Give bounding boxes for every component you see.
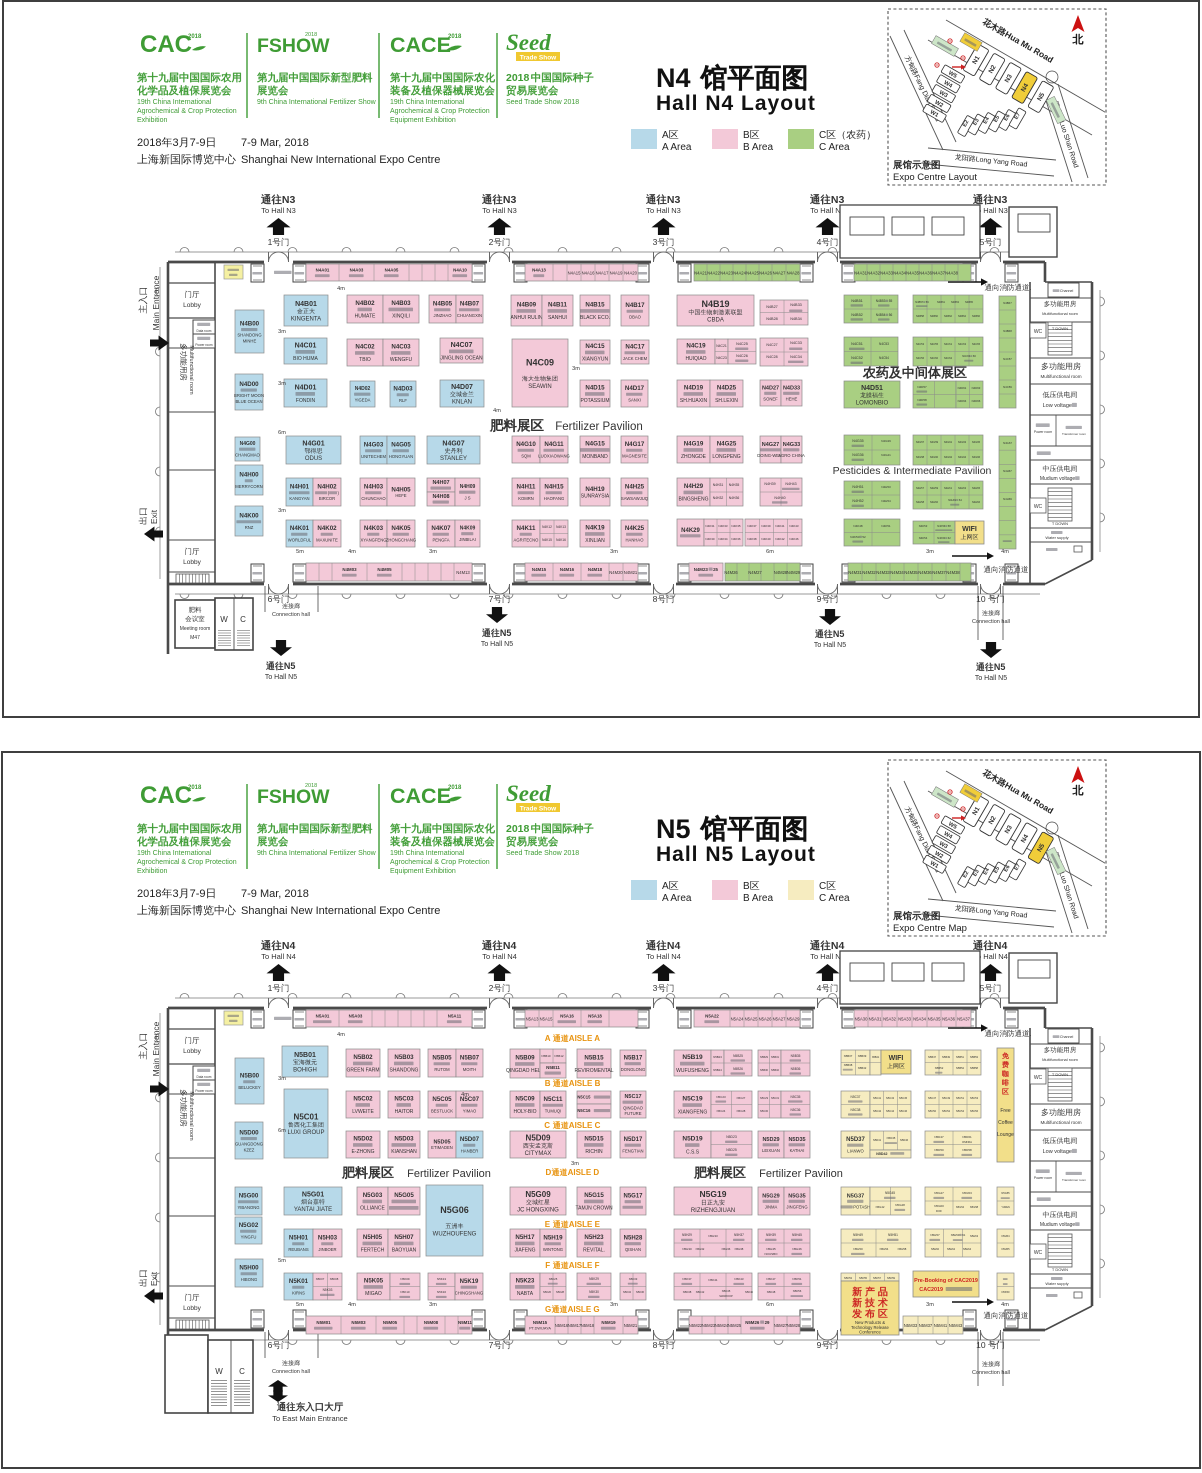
svg-text:2018: 2018 <box>448 34 462 40</box>
svg-text:N5H63: N5H63 <box>970 1234 979 1238</box>
svg-text:N4A05: N4A05 <box>385 267 399 272</box>
svg-text:N4G65: N4G65 <box>972 440 981 444</box>
svg-text:Power room: Power room <box>1034 1176 1052 1180</box>
svg-text:N4H51: N4H51 <box>852 485 863 489</box>
svg-text:N5G09: N5G09 <box>525 1190 551 1199</box>
svg-text:TBIO: TBIO <box>359 357 371 363</box>
svg-text:N5A33: N5A33 <box>898 1017 911 1022</box>
svg-text:SH.HUAXIN: SH.HUAXIN <box>680 398 708 404</box>
svg-text:4m: 4m <box>337 286 345 292</box>
svg-text:RIZHENGJIUAN: RIZHENGJIUAN <box>691 1208 735 1214</box>
svg-text:6m: 6m <box>278 430 286 436</box>
svg-text:Multifunctional room: Multifunctional room <box>1040 374 1081 379</box>
svg-text:SHANDONG: SHANDONG <box>390 1068 419 1074</box>
svg-text:N5C47: N5C47 <box>928 1096 937 1100</box>
svg-text:N5B15: N5B15 <box>584 1054 604 1061</box>
svg-text:DONGLONG: DONGLONG <box>621 1067 645 1072</box>
svg-text:N5H37: N5H37 <box>734 1233 744 1237</box>
svg-text:Equipment Exhibition: Equipment Exhibition <box>390 117 456 124</box>
svg-text:N5A36: N5A36 <box>942 1017 955 1022</box>
svg-text:QISHAN: QISHAN <box>625 1247 641 1252</box>
svg-text:N5G15: N5G15 <box>584 1192 604 1199</box>
svg-text:N4A28: N4A28 <box>787 271 800 276</box>
svg-text:XIANGYUN: XIANGYUN <box>582 357 609 363</box>
svg-text:N4H35: N4H35 <box>729 483 740 487</box>
svg-text:N4: N4 <box>503 940 517 952</box>
svg-text:N4B17: N4B17 <box>625 302 645 309</box>
svg-text:C: C <box>239 1367 245 1376</box>
svg-text:N5M21: N5M21 <box>624 1323 638 1328</box>
svg-text:N5G37: N5G37 <box>847 1193 864 1199</box>
svg-text:Multifunctional room: Multifunctional room <box>188 1091 194 1141</box>
svg-text:N4C64: N4C64 <box>962 354 971 358</box>
svg-text:N5A18: N5A18 <box>588 1013 602 1018</box>
svg-text:N4K54: N4K54 <box>919 536 928 540</box>
svg-text:HONGYUAN: HONGYUAN <box>389 454 413 459</box>
svg-text:JINBOER: JINBOER <box>318 1247 336 1252</box>
svg-text:SANXI: SANXI <box>628 397 641 402</box>
svg-text:N5G05: N5G05 <box>394 1192 414 1199</box>
svg-text:N5H45: N5H45 <box>766 1247 776 1251</box>
svg-text:3m: 3m <box>610 549 618 555</box>
svg-text:N4H29: N4H29 <box>684 483 704 490</box>
svg-text:N5C43: N5C43 <box>886 1096 895 1100</box>
svg-text:N5G06: N5G06 <box>440 1205 469 1215</box>
svg-text:C: C <box>819 130 826 141</box>
svg-text:N5M33: N5M33 <box>904 1323 918 1328</box>
svg-text:N4C53: N4C53 <box>916 342 925 346</box>
svg-text:To Hall N5: To Hall N5 <box>814 642 846 649</box>
svg-text:2018: 2018 <box>137 137 161 149</box>
svg-text:N5K55: N5K55 <box>859 1276 867 1280</box>
svg-text:7-9: 7-9 <box>190 888 206 900</box>
svg-text:N5B51: N5B51 <box>956 1055 964 1059</box>
svg-text:WENGFU: WENGFU <box>390 357 413 363</box>
svg-text:STANLEY: STANLEY <box>440 456 467 462</box>
svg-text:N4C56: N4C56 <box>916 356 925 360</box>
svg-text:N5K42: N5K42 <box>696 1290 705 1294</box>
svg-text:OLLIANCE: OLLIANCE <box>360 1206 385 1212</box>
svg-text:B Area: B Area <box>743 893 773 904</box>
svg-text:N4M36: N4M36 <box>918 570 932 575</box>
svg-text:N4M33: N4M33 <box>876 570 890 575</box>
svg-text:N4D64: N4D64 <box>958 399 967 403</box>
svg-text:N5C37: N5C37 <box>851 1095 861 1099</box>
svg-text:N5A22: N5A22 <box>705 1013 719 1018</box>
svg-text:N5C31: N5C31 <box>771 1096 780 1100</box>
svg-text:N4H69: N4H69 <box>1003 497 1012 501</box>
svg-text:Fertilizer Pavilion: Fertilizer Pavilion <box>759 1168 843 1180</box>
svg-text:N4G62: N4G62 <box>944 455 953 459</box>
svg-text:N5D25: N5D25 <box>726 1148 737 1152</box>
svg-text:N4D17: N4D17 <box>625 385 645 392</box>
svg-text:Power room: Power room <box>195 343 213 347</box>
svg-text:N5H17: N5H17 <box>515 1234 535 1241</box>
svg-text:CAC2019: CAC2019 <box>919 1287 943 1293</box>
svg-text:ETIMADEN: ETIMADEN <box>431 1145 453 1150</box>
svg-text:Shanghai New International Exp: Shanghai New International Expo Centre <box>241 905 440 917</box>
svg-text:To Hall N4: To Hall N4 <box>646 952 681 961</box>
svg-text:N4K15: N4K15 <box>542 538 552 542</box>
svg-text:XINQILI: XINQILI <box>392 314 410 320</box>
svg-text:N4K25: N4K25 <box>625 525 645 532</box>
svg-text:KOMRN: KOMRN <box>518 496 534 501</box>
svg-text:N5C56: N5C56 <box>970 1109 979 1113</box>
svg-text:N5B12: N5B12 <box>554 1054 564 1058</box>
svg-text:N5K29: N5K29 <box>589 1277 599 1281</box>
svg-text:.: . <box>1030 1029 1032 1038</box>
svg-text:N5K05: N5K05 <box>364 1277 384 1284</box>
svg-text:G: G <box>545 1305 551 1314</box>
svg-text:N4C63: N4C63 <box>958 342 967 346</box>
svg-text:Exit: Exit <box>149 509 159 524</box>
svg-text:T DOWN: T DOWN <box>1052 326 1068 331</box>
svg-text:N4B05: N4B05 <box>433 301 453 308</box>
svg-text:C: C <box>544 1121 550 1130</box>
svg-text:N4B64: N4B64 <box>958 314 966 318</box>
svg-text:N5G01: N5G01 <box>302 1191 324 1198</box>
svg-text:Seed: Seed <box>506 30 551 55</box>
svg-text:N5H58: N5H58 <box>898 1247 907 1251</box>
svg-text:N5D02: N5D02 <box>353 1135 373 1142</box>
svg-text:KIRNS: KIRNS <box>292 1290 305 1295</box>
svg-text:3m: 3m <box>278 329 286 335</box>
svg-text:WC: WC <box>1034 504 1043 510</box>
svg-text:N5D37: N5D37 <box>846 1137 865 1143</box>
svg-text:N5H28: N5H28 <box>624 1236 643 1242</box>
svg-text:BRIGHT MOON: BRIGHT MOON <box>234 393 264 398</box>
svg-text:N5A24: N5A24 <box>731 1017 744 1022</box>
svg-text:N4A15: N4A15 <box>568 271 581 276</box>
svg-text:N5K10: N5K10 <box>400 1290 410 1294</box>
svg-text:N5B38: N5B38 <box>844 1063 853 1067</box>
svg-text:N5H23: N5H23 <box>584 1234 604 1241</box>
svg-text:4m: 4m <box>461 1092 469 1098</box>
svg-text:Pre-Booking of CAC2019: Pre-Booking of CAC2019 <box>914 1278 978 1284</box>
svg-text:N5C54: N5C54 <box>956 1109 965 1113</box>
svg-text:2018: 2018 <box>506 72 530 84</box>
svg-text:N4D07: N4D07 <box>451 384 473 391</box>
svg-text:N4G19: N4G19 <box>684 440 704 447</box>
svg-text:RNZ: RNZ <box>245 525 254 530</box>
svg-text:HUIQIAO: HUIQIAO <box>685 356 706 362</box>
svg-text:N4A22: N4A22 <box>707 271 720 276</box>
svg-text:Connection hall: Connection hall <box>972 619 1010 625</box>
svg-text:N5H39: N5H39 <box>766 1233 776 1237</box>
svg-text:HEFE: HEFE <box>395 493 406 498</box>
svg-text:N5K53: N5K53 <box>844 1276 852 1280</box>
svg-text:Multifunctional room: Multifunctional room <box>1042 1057 1078 1062</box>
svg-text:6m: 6m <box>766 549 774 555</box>
svg-text:N4B15: N4B15 <box>585 301 605 308</box>
svg-text:1: 1 <box>268 237 273 247</box>
svg-text:AGRITECNO: AGRITECNO <box>514 537 540 542</box>
svg-text:KZEZ: KZEZ <box>244 1147 255 1152</box>
svg-text:C Area: C Area <box>819 893 850 904</box>
svg-text:ANHUI RULIN: ANHUI RULIN <box>511 315 543 321</box>
svg-text:Connection hall: Connection hall <box>972 1370 1010 1376</box>
svg-text:Trade Show: Trade Show <box>520 806 557 813</box>
svg-text:N4K09: N4K09 <box>460 526 476 532</box>
svg-text:PT.DWIJAYA: PT.DWIJAYA <box>529 1327 551 1331</box>
svg-text:Main Entrance: Main Entrance <box>151 1021 161 1076</box>
svg-text:8: 8 <box>653 594 658 604</box>
svg-text:N4G27: N4G27 <box>762 442 779 448</box>
svg-text:N4H52: N4H52 <box>852 499 863 503</box>
svg-text:N4K12: N4K12 <box>542 525 552 529</box>
svg-text:N4K50: N4K50 <box>850 535 860 539</box>
svg-text:MONBAND: MONBAND <box>582 454 608 460</box>
svg-text:4: 4 <box>817 983 822 993</box>
svg-text:N5A25: N5A25 <box>745 1017 758 1022</box>
svg-text:N5A29: N5A29 <box>787 1017 800 1022</box>
svg-text:N4A23: N4A23 <box>720 271 733 276</box>
svg-text:N5D09: N5D09 <box>526 1133 551 1142</box>
svg-text:6: 6 <box>268 594 273 604</box>
svg-text:N4H00: N4H00 <box>239 472 259 479</box>
svg-text:2018: 2018 <box>305 783 317 789</box>
svg-text:2018: 2018 <box>305 32 317 38</box>
svg-text:N5B09: N5B09 <box>515 1054 535 1061</box>
svg-text:N5A11: N5A11 <box>448 1013 462 1018</box>
svg-text:N4M27: N4M27 <box>748 570 762 575</box>
svg-text:N5C19: N5C19 <box>682 1096 703 1103</box>
svg-text:BLUE OCEAN: BLUE OCEAN <box>236 399 263 404</box>
svg-text:N5B42: N5B42 <box>858 1066 867 1070</box>
svg-text:N4C57: N4C57 <box>1003 357 1012 361</box>
svg-text:N5C41: N5C41 <box>873 1096 882 1100</box>
svg-text:19th China International: 19th China International <box>390 850 465 857</box>
svg-text:N4B02: N4B02 <box>355 300 375 307</box>
svg-text:CBDA: CBDA <box>707 318 724 324</box>
svg-text:N5K30: N5K30 <box>589 1290 599 1294</box>
svg-text:To East Main Entrance: To East Main Entrance <box>272 1414 347 1423</box>
svg-text:N4H40: N4H40 <box>774 496 785 500</box>
svg-text:N4H32: N4H32 <box>713 496 724 500</box>
svg-text:N4M21: N4M21 <box>624 570 638 575</box>
svg-text:N5C42: N5C42 <box>873 1109 882 1113</box>
svg-text:N4A03: N4A03 <box>350 267 364 272</box>
svg-text:N4C25: N4C25 <box>736 342 748 346</box>
svg-text:CACE: CACE <box>390 784 451 808</box>
svg-text:N3: N3 <box>282 194 296 206</box>
svg-text:AISLE G: AISLE G <box>568 1305 600 1314</box>
svg-text:Water supply: Water supply <box>1045 535 1068 540</box>
svg-text:N4B00: N4B00 <box>240 321 260 328</box>
svg-text:N4A13: N4A13 <box>532 267 546 272</box>
svg-text:Lobby: Lobby <box>183 1048 201 1055</box>
svg-text:CITYMAX: CITYMAX <box>525 1151 552 1157</box>
svg-text:Lounge: Lounge <box>997 1132 1014 1138</box>
svg-text:N5B41: N5B41 <box>872 1056 880 1059</box>
svg-text:3m: 3m <box>429 1302 437 1308</box>
svg-text:N4B61: N4B61 <box>937 300 945 304</box>
svg-text:N4K07: N4K07 <box>431 525 451 532</box>
svg-text:C: C <box>240 615 246 624</box>
svg-text:N5H05: N5H05 <box>363 1234 383 1241</box>
svg-text:N5D19: N5D19 <box>682 1136 703 1143</box>
svg-text:YIBANONG: YIBANONG <box>237 1205 259 1210</box>
svg-text:PENGFA: PENGFA <box>433 537 450 542</box>
svg-text:ZHONGDE: ZHONGDE <box>681 454 707 460</box>
svg-text:N5C05: N5C05 <box>432 1096 452 1103</box>
svg-text:N4K38: N4K38 <box>747 537 757 541</box>
svg-text:SANHUI: SANHUI <box>548 315 567 321</box>
svg-text:N5D50: N5D50 <box>934 1148 944 1152</box>
svg-text:N5M01: N5M01 <box>316 1320 331 1325</box>
svg-text:3m: 3m <box>572 366 580 372</box>
svg-text:N4M18: N4M18 <box>588 567 603 572</box>
svg-text:Multifunctional room: Multifunctional room <box>1042 311 1078 316</box>
svg-text:LUOXIAOWANG: LUOXIAOWANG <box>538 453 570 458</box>
svg-text:Seed: Seed <box>506 781 551 806</box>
svg-text:Mudium voltage: Mudium voltage <box>1040 1222 1076 1228</box>
svg-text:N5C49: N5C49 <box>942 1096 951 1100</box>
svg-text:N4G15: N4G15 <box>585 440 605 447</box>
svg-text:Power room: Power room <box>195 1089 213 1093</box>
svg-text:N5B49: N5B49 <box>942 1055 950 1059</box>
svg-text:N5A13: N5A13 <box>526 1017 539 1022</box>
svg-text:N5G54: N5G54 <box>956 1205 965 1209</box>
svg-text:Exit: Exit <box>149 1271 159 1286</box>
svg-text:N4G60: N4G60 <box>930 455 939 459</box>
svg-text:BAOYUAN: BAOYUAN <box>392 1248 417 1254</box>
svg-text:HAITOR: HAITOR <box>395 1109 414 1115</box>
svg-text:XYANGFENG: XYANGFENG <box>361 537 387 542</box>
svg-text:Hall N5 Layout: Hall N5 Layout <box>656 843 816 866</box>
svg-text:N5H45: N5H45 <box>792 1233 802 1237</box>
svg-text:FONDIN: FONDIN <box>296 398 316 404</box>
svg-text:N4C07: N4C07 <box>451 342 473 349</box>
svg-text:N4M26: N4M26 <box>724 570 738 575</box>
svg-text:NOUSBO: NOUSBO <box>764 1252 778 1256</box>
svg-text:N4: N4 <box>667 940 681 952</box>
svg-text:N5B37: N5B37 <box>844 1054 853 1058</box>
svg-text:MAGNESITE: MAGNESITE <box>622 453 647 458</box>
svg-text:N5G00: N5G00 <box>239 1193 259 1200</box>
svg-text:ZHONGCHANG: ZHONGCHANG <box>386 537 416 542</box>
svg-text:N5D47: N5D47 <box>934 1135 944 1139</box>
svg-text:N4G10: N4G10 <box>516 441 536 448</box>
svg-text:10: 10 <box>976 1340 986 1350</box>
svg-text:N4A27: N4A27 <box>773 271 786 276</box>
svg-text:N4C15: N4C15 <box>585 343 605 350</box>
svg-text:N5: N5 <box>284 661 296 671</box>
svg-text:N4H19: N4H19 <box>585 486 605 493</box>
svg-text:M47: M47 <box>190 635 200 641</box>
svg-text:N4M38: N4M38 <box>946 570 960 575</box>
svg-text:N4C53: N4C53 <box>879 342 889 346</box>
svg-text:7-9 Mar, 2018: 7-9 Mar, 2018 <box>241 137 309 149</box>
svg-text:N5C38: N5C38 <box>851 1108 861 1112</box>
svg-text:B: B <box>743 881 750 892</box>
svg-text:LIANWO: LIANWO <box>847 1148 864 1153</box>
svg-text:N5B39: N5B39 <box>858 1054 867 1058</box>
svg-text:N5D35: N5D35 <box>788 1137 805 1143</box>
svg-text:W: W <box>215 1367 223 1376</box>
svg-text:N4H61: N4H61 <box>944 486 953 490</box>
svg-text:N4B28: N4B28 <box>766 317 778 321</box>
svg-text:N5A35: N5A35 <box>928 1017 941 1022</box>
svg-text:N4B07: N4B07 <box>460 301 480 308</box>
svg-text:N5H07: N5H07 <box>394 1234 414 1241</box>
svg-text:N4H60: N4H60 <box>930 500 939 504</box>
svg-text:9th China International Fertil: 9th China International Fertilizer Show <box>257 850 377 857</box>
svg-text:N5C27: N5C27 <box>737 1096 746 1100</box>
svg-text:29: 29 <box>765 1320 770 1325</box>
svg-text:Power room: Power room <box>1034 430 1052 434</box>
svg-text:N5C02: N5C02 <box>353 1095 373 1102</box>
svg-text:UNITECHEM: UNITECHEM <box>361 454 386 459</box>
svg-text:N5M03: N5M03 <box>351 1320 366 1325</box>
svg-text:N4M34: N4M34 <box>890 570 904 575</box>
svg-text:N5K51: N5K51 <box>792 1277 802 1281</box>
svg-text:N4C54: N4C54 <box>879 356 889 360</box>
svg-text:HOLY-BIO: HOLY-BIO <box>513 1109 536 1115</box>
svg-text:3m: 3m <box>926 1302 934 1308</box>
svg-text:N5G45: N5G45 <box>885 1191 895 1195</box>
svg-text:N5H59: N5H59 <box>951 1233 960 1237</box>
svg-text:5m: 5m <box>296 1302 304 1308</box>
svg-text:A: A <box>662 130 669 141</box>
svg-text:N4A19: N4A19 <box>610 271 623 276</box>
svg-text:FSHOW: FSHOW <box>257 786 330 808</box>
svg-text:N4B58: N4B58 <box>916 314 924 318</box>
svg-text:T DOWN: T DOWN <box>1052 521 1068 526</box>
svg-text:N4H59: N4H59 <box>930 486 939 490</box>
svg-text:N4D15: N4D15 <box>585 384 605 391</box>
svg-text:N4K35: N4K35 <box>731 524 741 528</box>
svg-text:N4H01: N4H01 <box>290 484 310 491</box>
svg-text:61: 61 <box>962 1233 966 1237</box>
svg-text:19th China International: 19th China International <box>137 99 212 106</box>
svg-text:N4G64: N4G64 <box>958 455 967 459</box>
svg-text:CHUANGXIN: CHUANGXIN <box>457 313 482 318</box>
svg-text:N5D00: N5D00 <box>239 1130 259 1137</box>
svg-text:N4B66: N4B66 <box>972 314 980 318</box>
svg-text:25: 25 <box>713 567 718 572</box>
svg-text:Channel: Channel <box>1060 1035 1074 1039</box>
svg-text:Fertilizer Pavilion: Fertilizer Pavilion <box>407 1168 491 1180</box>
svg-text:N5H62: N5H62 <box>947 1247 956 1251</box>
svg-text:3: 3 <box>173 137 179 149</box>
svg-text:N5C17: N5C17 <box>624 1094 641 1100</box>
svg-text:Seed Trade Show 2018: Seed Trade Show 2018 <box>506 850 579 857</box>
svg-text:N4D25: N4D25 <box>717 384 737 391</box>
svg-text:JACK CHEM: JACK CHEM <box>623 356 648 361</box>
svg-text:N5B30: N5B30 <box>760 1068 768 1072</box>
svg-text:Free: Free <box>1000 1108 1011 1114</box>
svg-text:To Hall N5: To Hall N5 <box>975 675 1007 682</box>
svg-text:TUMUQI: TUMUQI <box>545 1108 562 1113</box>
svg-text:A Area: A Area <box>662 142 692 153</box>
svg-text:N4H08: N4H08 <box>432 494 449 500</box>
svg-text:Main Entrance: Main Entrance <box>151 275 161 330</box>
svg-text:N5H55: N5H55 <box>1001 1247 1010 1251</box>
svg-text:NABTA: NABTA <box>517 1291 534 1297</box>
svg-text:N4C19: N4C19 <box>686 342 706 349</box>
svg-text:N4A37: N4A37 <box>932 271 945 276</box>
svg-text:Exhibition: Exhibition <box>137 868 167 875</box>
svg-text:N4C27: N4C27 <box>766 343 777 347</box>
svg-text:.: . <box>1030 283 1032 292</box>
svg-text:N4G58: N4G58 <box>916 455 925 459</box>
svg-text:N4C02: N4C02 <box>355 343 375 350</box>
svg-text:2: 2 <box>489 237 494 247</box>
svg-text:FSHOW: FSHOW <box>257 35 330 57</box>
svg-text:WC: WC <box>1034 329 1043 335</box>
svg-text:Expo Centre Layout: Expo Centre Layout <box>893 172 977 183</box>
